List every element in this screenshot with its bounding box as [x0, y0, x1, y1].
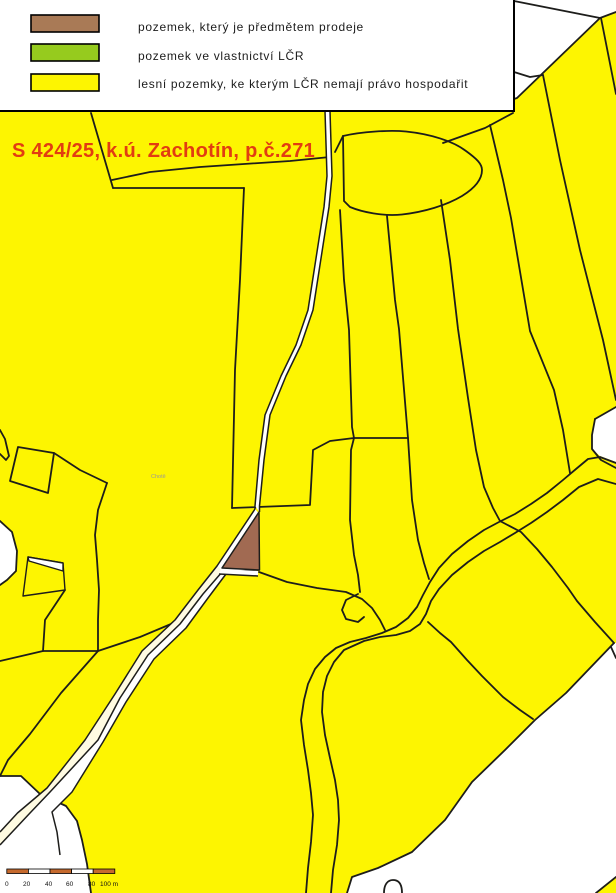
- svg-text:lesní pozemky, ke kterým LČR n: lesní pozemky, ke kterým LČR nemají práv…: [138, 76, 468, 91]
- svg-text:pozemek ve vlastnictví LČR: pozemek ve vlastnictví LČR: [138, 48, 304, 63]
- svg-text:40: 40: [45, 881, 53, 888]
- svg-text:20: 20: [23, 881, 31, 888]
- svg-text:80: 80: [88, 881, 96, 888]
- svg-text:Chotě: Chotě: [151, 474, 166, 480]
- svg-text:pozemek, který je předmětem pr: pozemek, který je předmětem prodeje: [138, 20, 364, 34]
- svg-text:100 m: 100 m: [100, 881, 118, 888]
- svg-text:S 424/25, k.ú. Zachotín, p.č.2: S 424/25, k.ú. Zachotín, p.č.271: [12, 140, 315, 162]
- svg-text:60: 60: [66, 881, 74, 888]
- svg-text:0: 0: [5, 881, 9, 888]
